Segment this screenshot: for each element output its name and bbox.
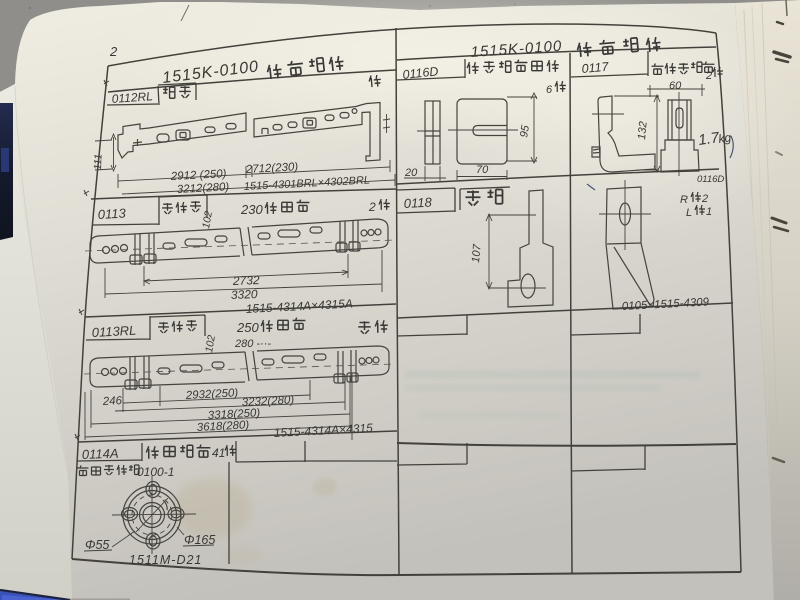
svg-text:6: 6 (546, 84, 553, 96)
svg-text:230: 230 (240, 202, 263, 217)
svg-text:246: 246 (102, 395, 123, 408)
svg-text:41: 41 (212, 446, 225, 460)
svg-text:70: 70 (476, 164, 489, 176)
svg-text:2: 2 (701, 193, 708, 205)
svg-text:0114A: 0114A (82, 446, 119, 462)
svg-text:kg: kg (717, 130, 732, 146)
svg-text:3320: 3320 (231, 287, 258, 302)
svg-text:0116D: 0116D (697, 174, 724, 185)
svg-text:280 -··-: 280 -··- (234, 338, 271, 350)
svg-text:L: L (686, 207, 692, 219)
svg-text:0100-1: 0100-1 (137, 465, 174, 479)
svg-text:0112RL: 0112RL (111, 89, 153, 106)
svg-text:132: 132 (636, 121, 650, 140)
svg-text:250: 250 (236, 320, 259, 335)
svg-text:0113RL: 0113RL (91, 323, 136, 340)
svg-text:0118: 0118 (403, 195, 432, 211)
svg-text:2: 2 (109, 44, 118, 59)
svg-text:0117: 0117 (581, 60, 610, 76)
svg-text:1: 1 (706, 206, 712, 218)
svg-text:111: 111 (92, 154, 105, 170)
svg-text:20: 20 (404, 167, 418, 179)
svg-text:Φ165: Φ165 (184, 533, 215, 547)
svg-text:Φ55: Φ55 (85, 538, 109, 552)
svg-text:1511M-D21: 1511M-D21 (129, 553, 202, 567)
svg-text:2732: 2732 (232, 273, 260, 288)
svg-text:107: 107 (470, 243, 484, 263)
svg-text:60: 60 (669, 80, 682, 92)
svg-text:R: R (680, 194, 688, 206)
svg-text:0113: 0113 (97, 206, 126, 222)
svg-text:2: 2 (368, 200, 376, 214)
